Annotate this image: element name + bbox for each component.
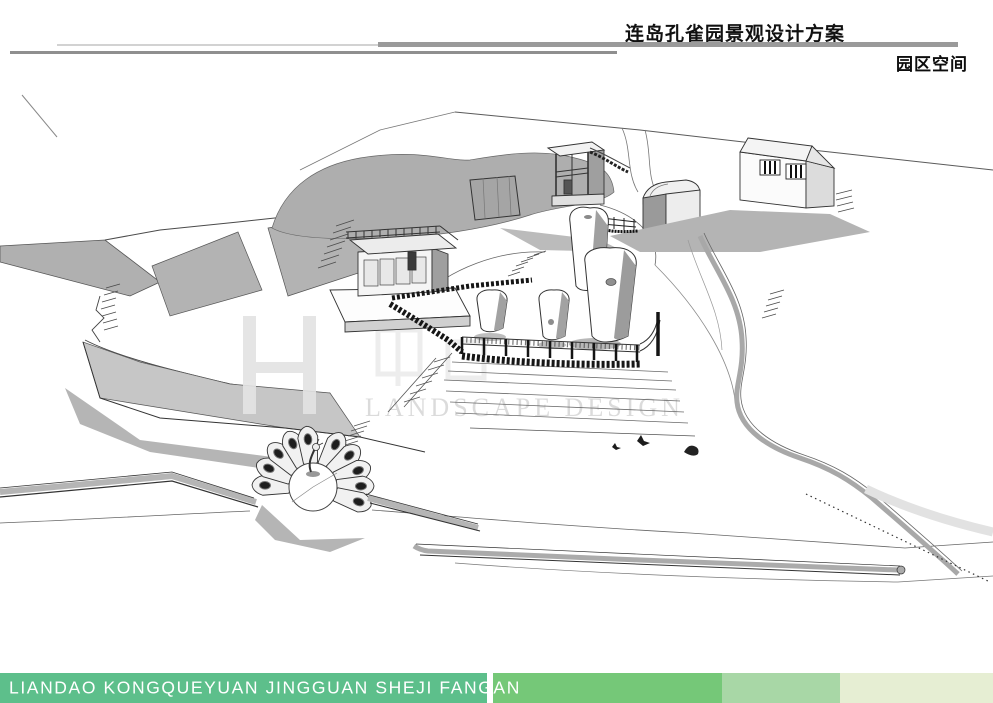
site-plan-rendering: LANDSCAPE DESIGN <box>0 0 993 703</box>
footer-segment-3 <box>722 673 840 703</box>
east-stairs <box>762 290 784 318</box>
footer-segment-1: LIANDAO KONGQUEYUAN JINGGUAN SHEJI FANGA… <box>0 673 487 703</box>
footer-caption: LIANDAO KONGQUEYUAN JINGGUAN SHEJI FANGA… <box>9 678 521 699</box>
footer-band: LIANDAO KONGQUEYUAN JINGGUAN SHEJI FANGA… <box>0 673 993 703</box>
east-path <box>366 494 480 531</box>
presentation-page: 连岛孔雀园景观设计方案 园区空间 <box>0 0 993 703</box>
roads <box>0 472 993 582</box>
hill-stairs <box>508 251 546 276</box>
peacock-plaza <box>252 425 374 552</box>
footer-segment-4 <box>840 673 993 703</box>
hanging-plant <box>408 252 416 270</box>
river <box>688 233 993 574</box>
stump <box>477 290 507 332</box>
peacock-figures <box>612 435 699 456</box>
stump <box>539 290 569 340</box>
tower-door <box>564 180 572 194</box>
stump <box>585 248 636 342</box>
footer-segment-2 <box>493 673 722 703</box>
rock-face <box>470 176 520 220</box>
house-side-stairs <box>836 190 854 212</box>
barred-window <box>786 164 806 179</box>
barred-window <box>760 160 780 175</box>
west-wall <box>0 472 258 507</box>
quarry-terrain <box>0 212 425 474</box>
long-wall <box>414 544 993 582</box>
